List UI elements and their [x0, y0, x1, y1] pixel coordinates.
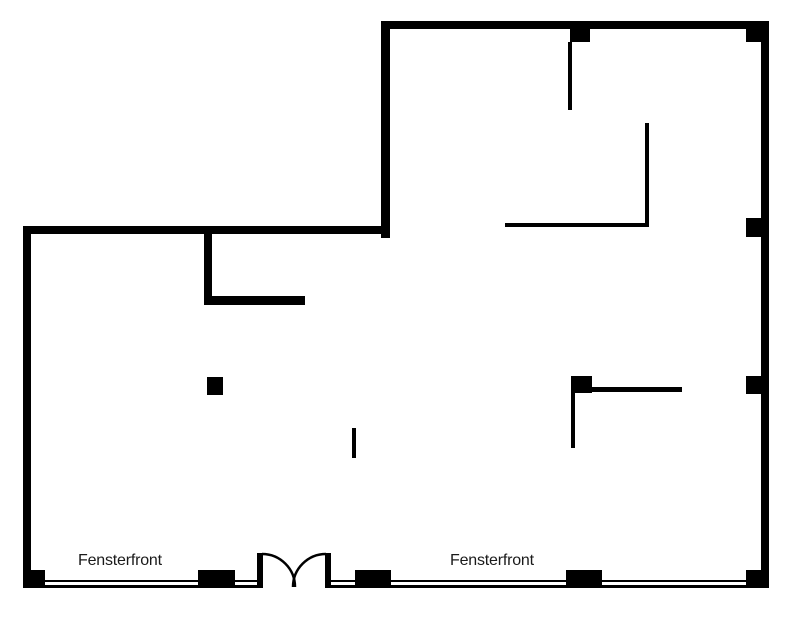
partitions-group: [352, 42, 682, 458]
pillar-bottom-left-corner: [23, 570, 45, 588]
interior-wall-horizontal: [204, 296, 305, 305]
partition-mid-horizontal: [592, 387, 682, 392]
pillar-bottom-right-corner: [746, 570, 769, 588]
pillar-freestanding-right: [571, 376, 592, 393]
window-line-right-outer: [331, 580, 761, 582]
pillar-bottom-2: [355, 570, 391, 588]
partition-mid-vertical: [571, 393, 575, 448]
left-wing-top-wall: [23, 226, 390, 234]
left-wall: [23, 226, 31, 588]
window-front-label-left: Fensterfront: [78, 552, 162, 569]
pillar-right-wall-upper: [746, 218, 761, 237]
pillar-top-right-corner: [746, 29, 761, 42]
partition-upper-l-horizontal: [505, 223, 649, 227]
floor-plan: Fensterfront Fensterfront: [0, 0, 801, 620]
window-line-right-inner: [331, 585, 761, 588]
door-post-right: [325, 553, 331, 588]
top-wall: [381, 21, 769, 29]
partition-top-center: [568, 42, 572, 110]
walls-group: [23, 21, 769, 588]
pillar-right-wall-lower: [746, 376, 761, 394]
door-post-left: [257, 553, 263, 588]
floor-plan-svg: [0, 0, 801, 620]
door-group: [257, 553, 331, 588]
pillar-bottom-3: [566, 570, 602, 588]
right-wall: [761, 21, 769, 588]
window-front-label-right: Fensterfront: [450, 552, 534, 569]
pillar-freestanding-left: [207, 377, 223, 395]
interior-wall-vertical: [204, 234, 212, 305]
door-swing-right: [293, 554, 326, 587]
partition-upper-l-vertical: [645, 123, 649, 227]
door-swing-left: [262, 554, 295, 587]
window-lines-group: [31, 580, 761, 588]
pillars-group: [23, 29, 769, 588]
pillar-top-center: [570, 29, 590, 42]
upper-left-wall: [381, 21, 390, 238]
partition-tick: [352, 428, 356, 458]
pillar-bottom-1: [198, 570, 235, 588]
